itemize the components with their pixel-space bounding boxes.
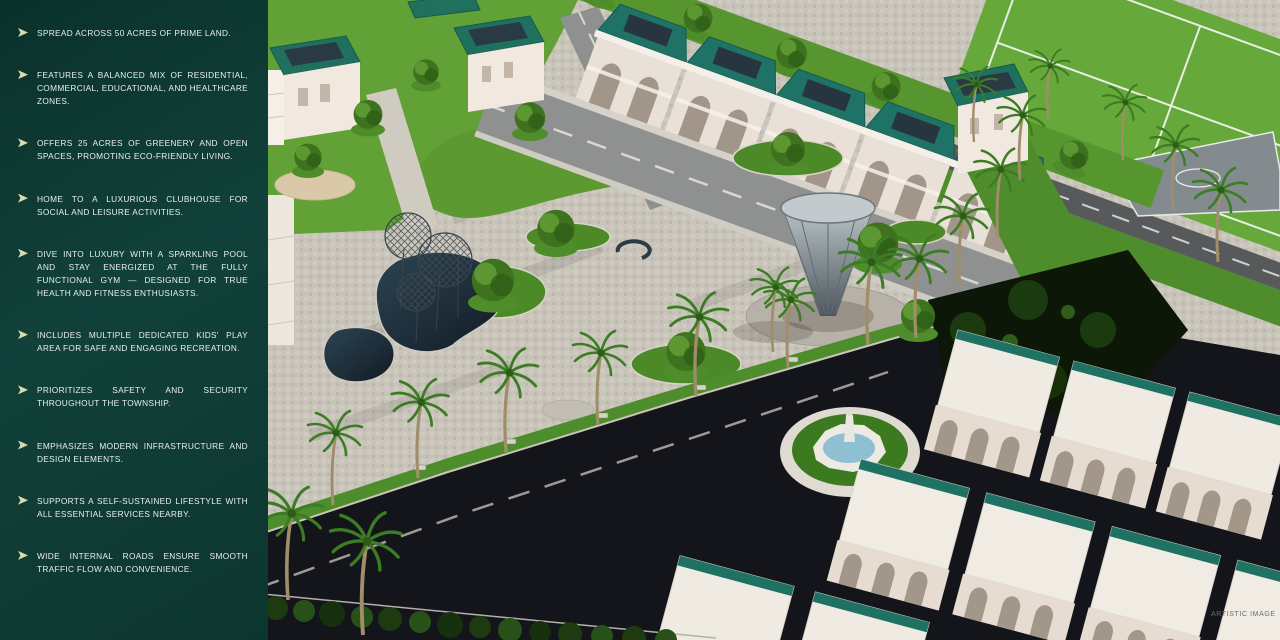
features-list: SPREAD ACROSS 50 ACRES OF PRIME LAND. FE… [18,27,248,576]
township-scene-graphic [268,0,1280,640]
feature-item: SUPPORTS A SELF-SUSTAINED LIFESTYLE WITH… [18,495,248,521]
feature-item: EMPHASIZES MODERN INFRASTRUCTURE AND DES… [18,440,248,466]
feature-item: OFFERS 25 ACRES OF GREENERY AND OPEN SPA… [18,137,248,163]
feature-item: WIDE INTERNAL ROADS ENSURE SMOOTH TRAFFI… [18,550,248,576]
bullet-arrow-icon [18,70,28,79]
feature-text: INCLUDES MULTIPLE DEDICATED KIDS' PLAY A… [37,329,248,355]
feature-item: INCLUDES MULTIPLE DEDICATED KIDS' PLAY A… [18,329,248,355]
bullet-arrow-icon [18,249,28,258]
features-sidebar: SPREAD ACROSS 50 ACRES OF PRIME LAND. FE… [0,0,268,640]
feature-text: FEATURES A BALANCED MIX OF RESIDENTIAL, … [37,69,248,108]
bullet-arrow-icon [18,441,28,450]
feature-item: DIVE INTO LUXURY WITH A SPARKLING POOL A… [18,248,248,300]
feature-text: SUPPORTS A SELF-SUSTAINED LIFESTYLE WITH… [37,495,248,521]
clubhouse-edge [268,195,294,345]
feature-item: FEATURES A BALANCED MIX OF RESIDENTIAL, … [18,69,248,108]
bullet-arrow-icon [18,496,28,505]
feature-text: SPREAD ACROSS 50 ACRES OF PRIME LAND. [37,27,231,40]
bullet-arrow-icon [18,551,28,560]
feature-text: HOME TO A LUXURIOUS CLUBHOUSE FOR SOCIAL… [37,193,248,219]
bullet-arrow-icon [18,138,28,147]
feature-text: EMPHASIZES MODERN INFRASTRUCTURE AND DES… [37,440,248,466]
bullet-arrow-icon [18,330,28,339]
bullet-arrow-icon [18,28,28,37]
feature-item: HOME TO A LUXURIOUS CLUBHOUSE FOR SOCIAL… [18,193,248,219]
feature-text: WIDE INTERNAL ROADS ENSURE SMOOTH TRAFFI… [37,550,248,576]
feature-item: PRIORITIZES SAFETY AND SECURITY THROUGHO… [18,384,248,410]
brochure-page: SPREAD ACROSS 50 ACRES OF PRIME LAND. FE… [0,0,1280,640]
bullet-arrow-icon [18,194,28,203]
feature-text: PRIORITIZES SAFETY AND SECURITY THROUGHO… [37,384,248,410]
feature-text: OFFERS 25 ACRES OF GREENERY AND OPEN SPA… [37,137,248,163]
feature-text: DIVE INTO LUXURY WITH A SPARKLING POOL A… [37,248,248,300]
township-render: ARTISTIC IMAGE [268,0,1280,640]
villa [268,36,360,145]
artistic-image-label: ARTISTIC IMAGE [1211,611,1276,618]
bullet-arrow-icon [18,385,28,394]
feature-item: SPREAD ACROSS 50 ACRES OF PRIME LAND. [18,27,248,40]
